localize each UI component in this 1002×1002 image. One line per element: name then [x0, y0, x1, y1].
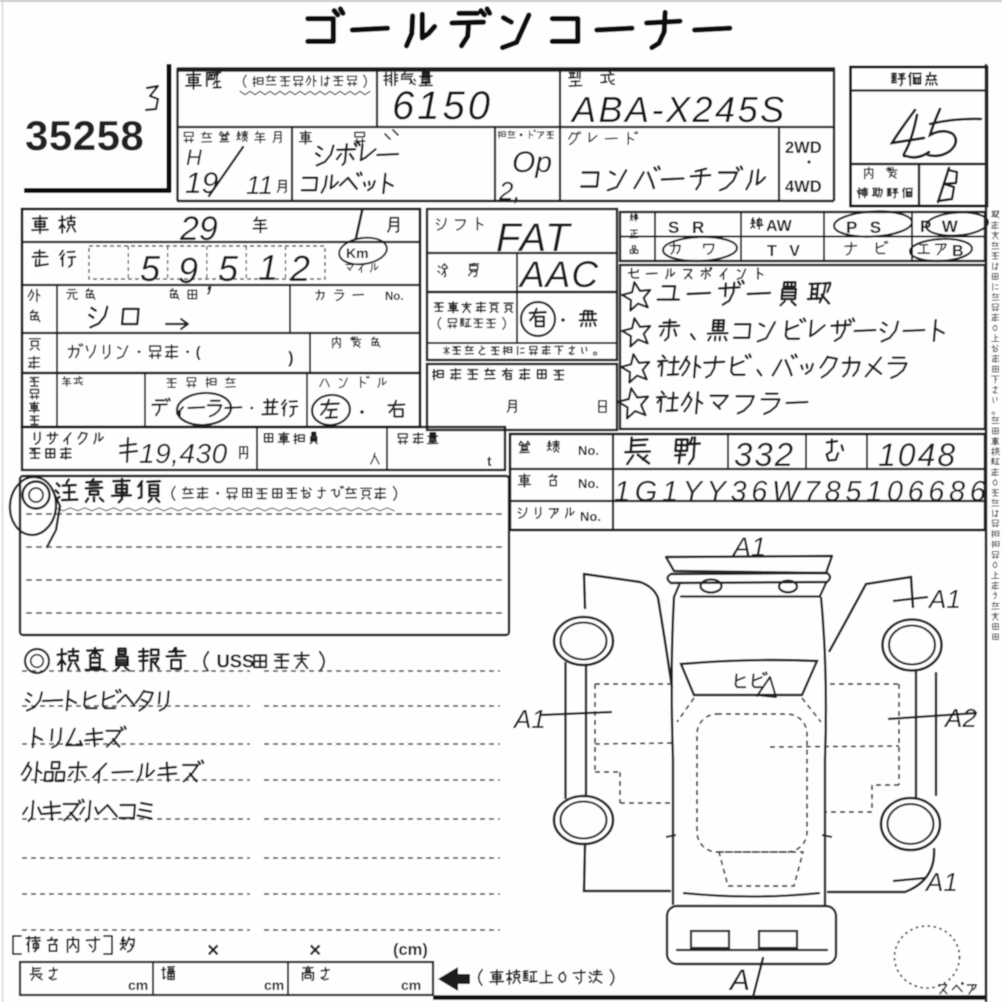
- svg-text:t: t: [487, 453, 492, 469]
- svg-text:19,430: 19,430: [139, 438, 228, 469]
- svg-text:35258: 35258: [25, 112, 144, 159]
- svg-text:29: 29: [179, 210, 218, 248]
- svg-text:(cm): (cm): [393, 941, 428, 959]
- svg-text:P S: P S: [846, 218, 885, 237]
- svg-text:×: ×: [309, 939, 321, 962]
- svg-text:1: 1: [258, 247, 278, 288]
- svg-text:A: A: [728, 964, 750, 997]
- svg-text:AAC: AAC: [518, 254, 599, 295]
- svg-text:19: 19: [185, 167, 219, 200]
- svg-text:5: 5: [140, 248, 161, 289]
- svg-text:1048: 1048: [878, 437, 957, 473]
- svg-text:): ): [288, 348, 294, 367]
- svg-text:2WD: 2WD: [785, 139, 822, 157]
- svg-text:No.: No.: [385, 291, 404, 303]
- svg-text:No.: No.: [578, 476, 599, 491]
- svg-text:Km: Km: [346, 245, 369, 261]
- svg-text:cm: cm: [128, 977, 148, 993]
- svg-text:A2: A2: [943, 703, 977, 733]
- svg-text:4WD: 4WD: [785, 178, 822, 196]
- svg-text:AW: AW: [766, 218, 793, 235]
- svg-text:USS: USS: [217, 650, 255, 671]
- svg-text:T V: T V: [767, 243, 804, 260]
- svg-text:5: 5: [218, 248, 239, 289]
- svg-text:×: ×: [207, 939, 219, 962]
- svg-text:A1: A1: [512, 704, 546, 734]
- svg-text:6150: 6150: [392, 84, 493, 128]
- svg-text:No.: No.: [580, 509, 601, 524]
- svg-text:1G1YY36W785106686: 1G1YY36W785106686: [614, 476, 990, 508]
- svg-text:2,: 2,: [498, 176, 521, 206]
- svg-text:ABA-X245S: ABA-X245S: [570, 89, 787, 130]
- svg-text:332: 332: [734, 436, 795, 473]
- svg-text:A1: A1: [731, 532, 766, 562]
- svg-text:cm: cm: [264, 977, 284, 993]
- svg-text:,: ,: [206, 260, 215, 298]
- svg-text:S R: S R: [668, 218, 708, 237]
- svg-text:11: 11: [246, 170, 273, 200]
- svg-text:A1: A1: [927, 584, 961, 614]
- svg-text:9: 9: [178, 250, 198, 291]
- svg-text:A1: A1: [924, 867, 958, 897]
- svg-text:No.: No.: [578, 443, 599, 458]
- svg-text:2: 2: [289, 248, 310, 289]
- svg-text:Op: Op: [512, 146, 552, 179]
- svg-text:cm: cm: [401, 977, 421, 993]
